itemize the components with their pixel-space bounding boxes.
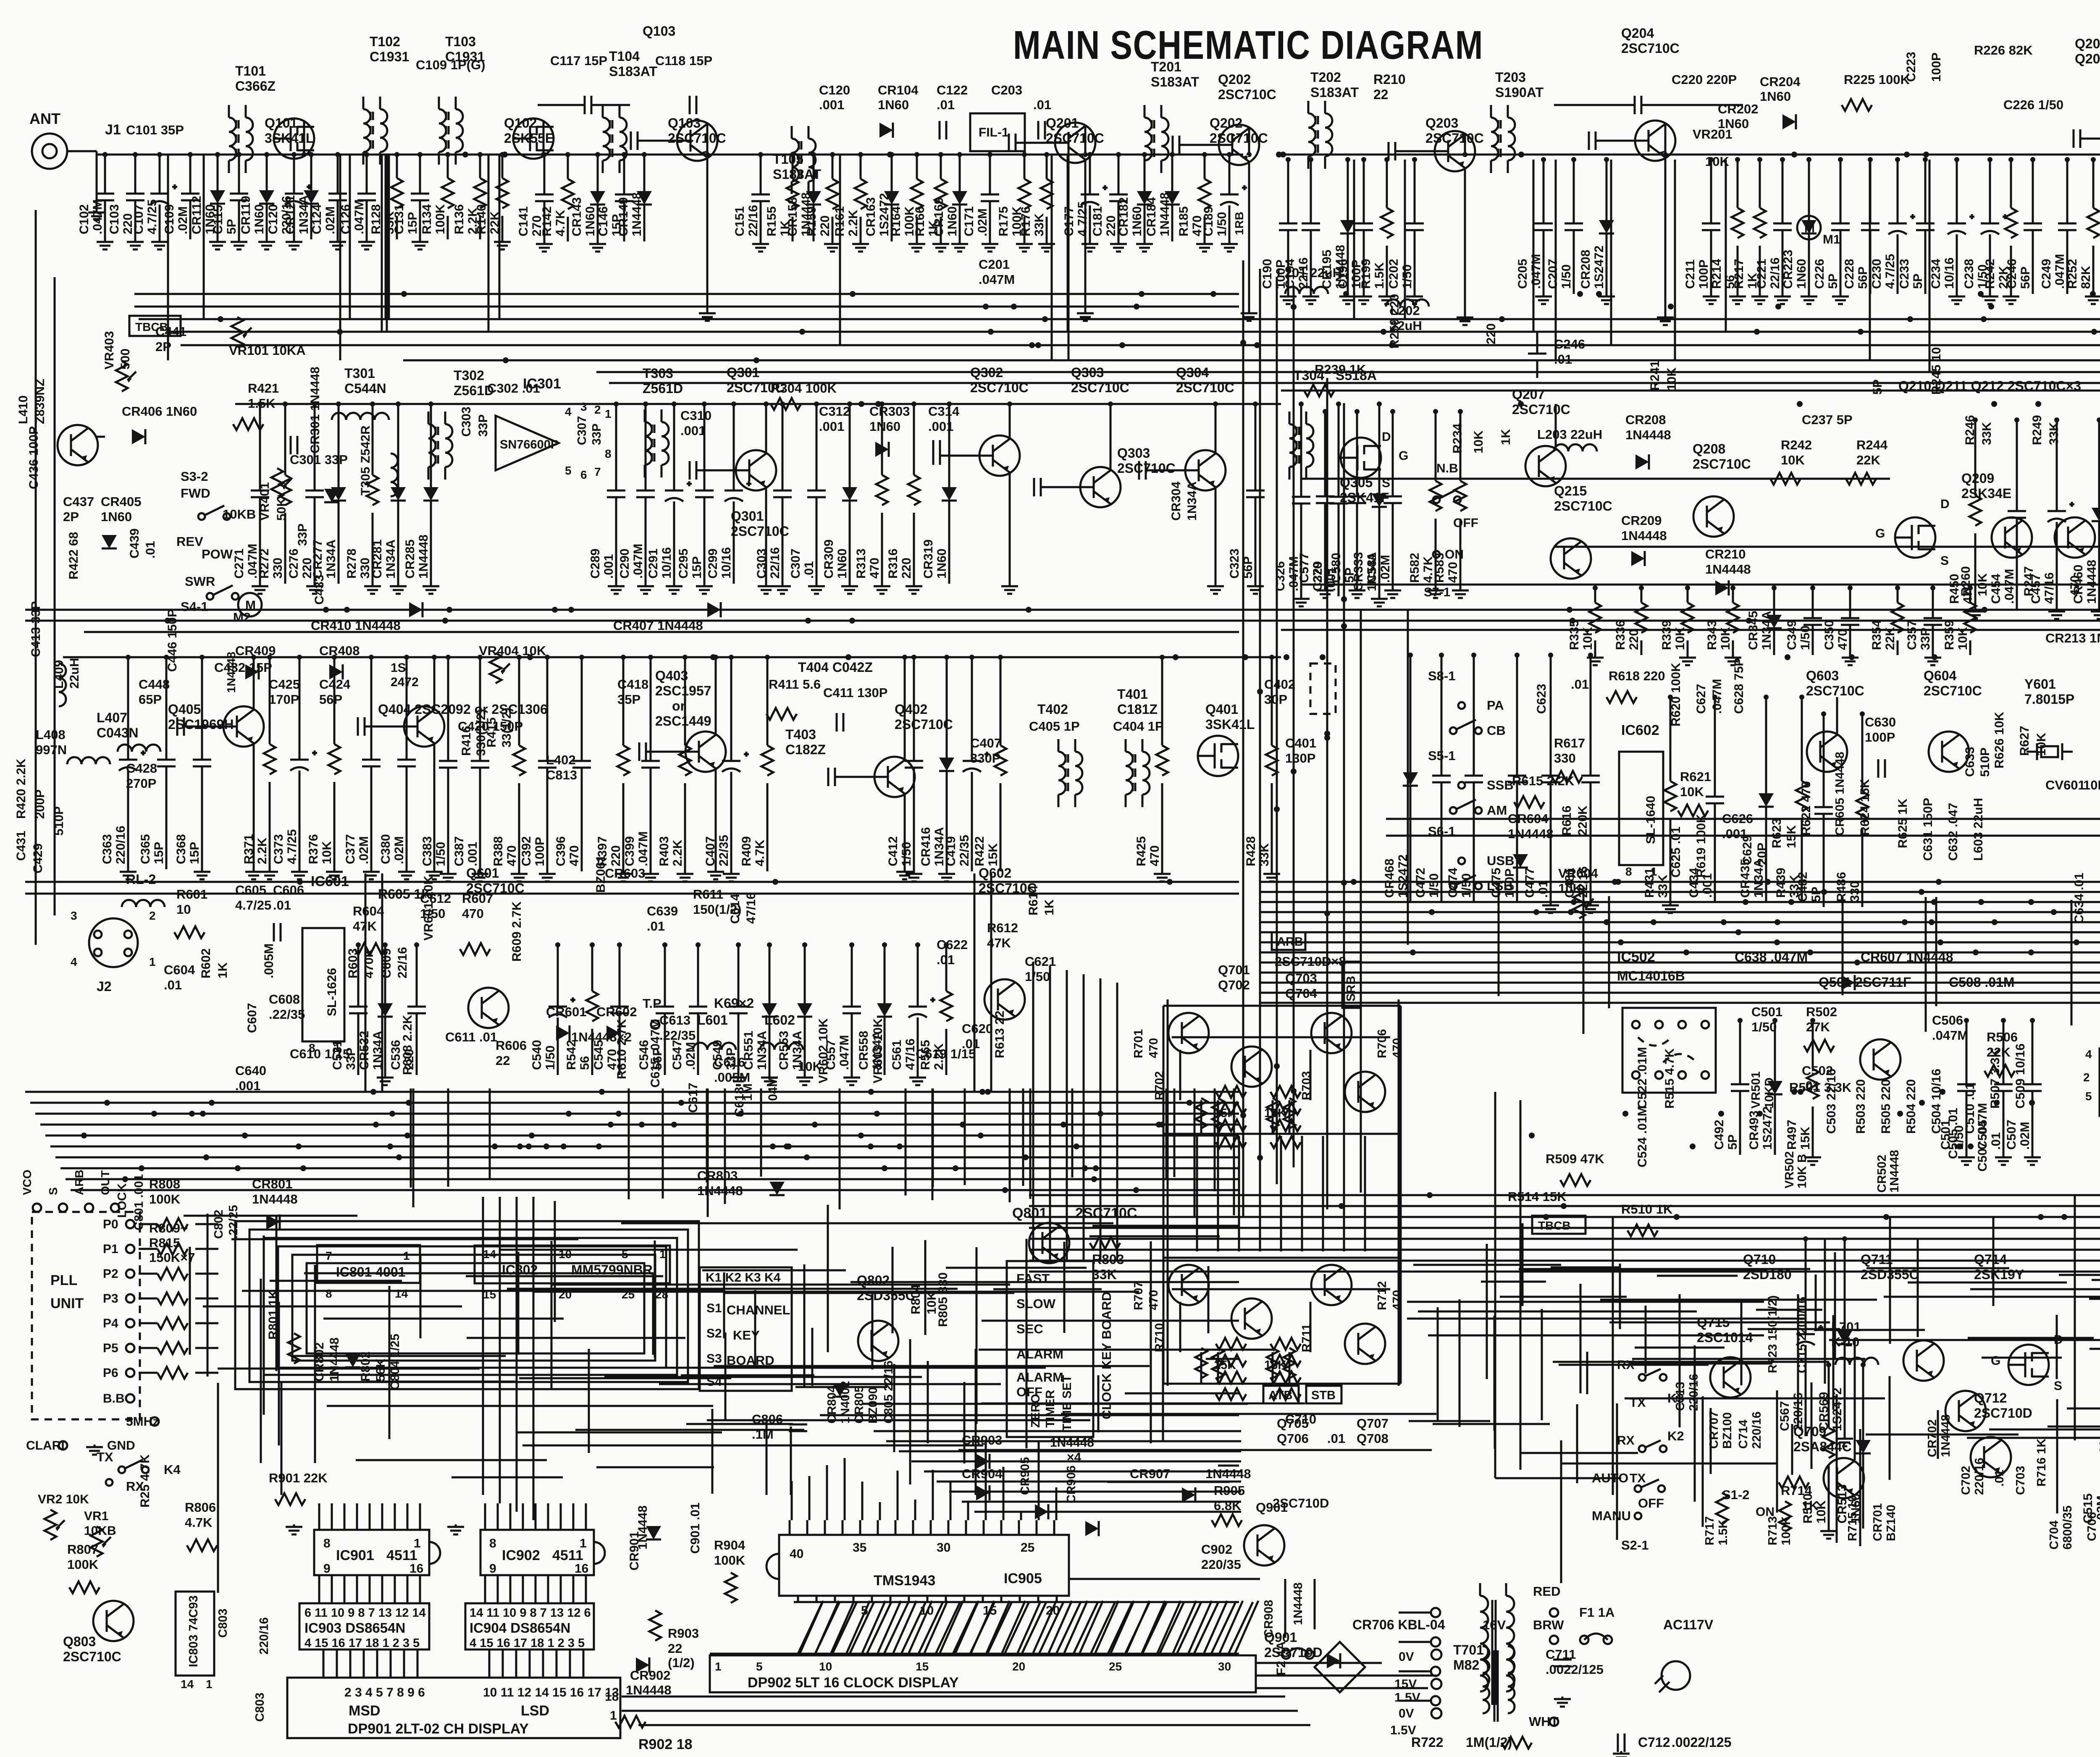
svg-text:C623: C623 <box>1535 684 1549 714</box>
svg-text:C632 .047: C632 .047 <box>1946 803 1960 861</box>
svg-text:CR208: CR208 <box>1625 412 1666 427</box>
svg-text:R199: R199 <box>1359 259 1373 289</box>
svg-text:2P: 2P <box>155 339 171 354</box>
svg-text:100P: 100P <box>1929 52 1943 82</box>
svg-text:T203: T203 <box>1495 70 1526 85</box>
svg-text:C433: C433 <box>312 574 326 605</box>
svg-text:IC601: IC601 <box>311 873 349 889</box>
svg-text:Q710: Q710 <box>1743 1252 1776 1267</box>
svg-text:14 11 10 9 8 7 13 12 6: 14 11 10 9 8 7 13 12 6 <box>470 1606 591 1620</box>
svg-text:.01: .01 <box>1327 1431 1345 1446</box>
svg-text:S183AT: S183AT <box>1151 74 1199 89</box>
svg-text:S8-1: S8-1 <box>1428 669 1455 683</box>
svg-text:2SK34E: 2SK34E <box>1961 486 2011 501</box>
svg-text:K2: K2 <box>1667 1429 1684 1443</box>
svg-text:CR903: CR903 <box>962 1433 1003 1448</box>
svg-text:C181: C181 <box>1091 206 1105 236</box>
svg-text:CR209: CR209 <box>1621 513 1662 528</box>
svg-text:CR208: CR208 <box>1579 250 1593 289</box>
svg-text:330: 330 <box>1848 881 1862 902</box>
svg-text:L402: L402 <box>546 753 576 767</box>
svg-text:C804 1/25: C804 1/25 <box>388 1334 402 1390</box>
svg-text:R217: R217 <box>1732 259 1746 289</box>
svg-text:15V: 15V <box>1394 1677 1417 1691</box>
svg-text:C604: C604 <box>164 962 195 977</box>
svg-text:R805 330: R805 330 <box>936 1272 950 1327</box>
svg-text:R620 100K: R620 100K <box>1669 663 1683 726</box>
svg-text:SRB: SRB <box>1344 976 1358 1002</box>
svg-text:1N4448: 1N4448 <box>1705 562 1751 577</box>
svg-text:7.8015P: 7.8015P <box>2024 692 2074 707</box>
svg-text:C392: C392 <box>520 836 533 866</box>
svg-text:VCO: VCO <box>21 1170 34 1195</box>
svg-text:1/50: 1/50 <box>434 842 448 866</box>
svg-text:Q204: Q204 <box>1621 26 1654 41</box>
svg-text:10: 10 <box>920 1604 934 1618</box>
svg-text:C117 15P: C117 15P <box>550 53 607 68</box>
svg-text:.005M: .005M <box>262 944 276 978</box>
svg-text:.0022/125: .0022/125 <box>1546 1662 1604 1677</box>
svg-text:Q301: Q301 <box>731 509 764 524</box>
svg-text:470: 470 <box>1961 583 1975 604</box>
svg-text:14: 14 <box>395 1287 408 1300</box>
svg-text:15P: 15P <box>406 212 420 234</box>
svg-text:Q706: Q706 <box>1277 1431 1309 1446</box>
svg-text:or: or <box>672 698 685 713</box>
svg-text:25: 25 <box>1021 1541 1034 1555</box>
svg-text:R226 82K: R226 82K <box>1974 43 2033 58</box>
svg-text:220/16: 220/16 <box>1750 1411 1764 1449</box>
svg-text:C396: C396 <box>554 836 568 866</box>
svg-text:UNIT: UNIT <box>50 1295 84 1311</box>
svg-text:R497: R497 <box>1785 1120 1799 1150</box>
svg-text:1S: 1S <box>391 661 406 675</box>
svg-text:CR551: CR551 <box>742 1031 756 1070</box>
svg-text:2SK41F: 2SK41F <box>1340 490 1389 505</box>
svg-text:.001: .001 <box>466 842 480 866</box>
svg-text:C246: C246 <box>2005 259 2019 289</box>
svg-text:1N34A: 1N34A <box>1760 611 1774 650</box>
svg-text:Q205: Q205 <box>2075 36 2100 51</box>
svg-text:CR904: CR904 <box>962 1466 1003 1481</box>
svg-text:VR502: VR502 <box>1783 1151 1796 1188</box>
svg-text:CR905: CR905 <box>1018 1457 1032 1495</box>
svg-text:C368: C368 <box>174 834 188 864</box>
svg-text:C211: C211 <box>1683 260 1697 289</box>
svg-text:D: D <box>2054 1333 2063 1347</box>
svg-text:C639: C639 <box>647 904 678 918</box>
svg-text:2SC710C: 2SC710C <box>1075 1205 1137 1221</box>
svg-text:220: 220 <box>402 1049 416 1070</box>
svg-text:1N4448: 1N4448 <box>626 1683 672 1697</box>
svg-text:P4: P4 <box>103 1316 118 1330</box>
svg-text:R617: R617 <box>1554 736 1585 750</box>
svg-text:1S2472: 1S2472 <box>1396 855 1410 898</box>
svg-text:R486: R486 <box>1835 872 1848 902</box>
svg-text:C621: C621 <box>1025 954 1056 969</box>
svg-text:220: 220 <box>1104 215 1118 236</box>
svg-text:8: 8 <box>1625 865 1632 878</box>
svg-text:T701: T701 <box>1453 1642 1484 1657</box>
svg-text:Q711: Q711 <box>1861 1252 1893 1267</box>
svg-text:4511: 4511 <box>386 1547 417 1563</box>
svg-text:CR204: CR204 <box>1760 74 1801 89</box>
svg-text:.02M: .02M <box>392 836 406 864</box>
svg-text:Y601: Y601 <box>2024 677 2056 692</box>
svg-text:R615 2.2K: R615 2.2K <box>1512 774 1575 788</box>
svg-text:C481: C481 <box>1563 868 1577 898</box>
svg-text:CR184: CR184 <box>1144 197 1158 236</box>
svg-text:VR401: VR401 <box>258 482 272 521</box>
svg-text:5MHz: 5MHz <box>126 1415 159 1429</box>
svg-text:CR163: CR163 <box>864 197 878 236</box>
svg-text:IC803 74C93: IC803 74C93 <box>187 1595 200 1667</box>
svg-text:1N60: 1N60 <box>869 419 900 434</box>
svg-text:15P: 15P <box>152 842 166 864</box>
svg-text:C454: C454 <box>1989 574 2003 604</box>
svg-text:R502: R502 <box>1806 1004 1837 1019</box>
svg-text:9: 9 <box>489 1562 496 1576</box>
svg-text:RX: RX <box>1617 1358 1635 1372</box>
svg-text:22/16: 22/16 <box>746 205 760 236</box>
svg-text:C714: C714 <box>1737 1420 1750 1449</box>
svg-text:10P: 10P <box>2083 778 2100 792</box>
svg-text:2SC710C: 2SC710C <box>668 131 726 146</box>
svg-text:P6: P6 <box>103 1366 118 1380</box>
svg-text:R244: R244 <box>1856 438 1888 452</box>
svg-text:R710: R710 <box>1153 1323 1166 1352</box>
svg-text:2SC710C: 2SC710C <box>1425 131 1484 146</box>
svg-text:CR304: CR304 <box>1169 481 1183 521</box>
svg-text:C613: C613 <box>659 1013 690 1028</box>
svg-text:1/50: 1/50 <box>543 1046 557 1070</box>
svg-text:R185: R185 <box>1177 206 1191 236</box>
svg-text:1/50: 1/50 <box>1025 969 1050 984</box>
svg-text:FAST: FAST <box>1016 1271 1050 1286</box>
svg-text:Q602: Q602 <box>979 865 1011 881</box>
svg-text:R627: R627 <box>2018 726 2032 756</box>
svg-text:10K B: 10K B <box>1795 1154 1809 1188</box>
svg-text:5: 5 <box>622 1248 628 1261</box>
svg-text:1/50: 1/50 <box>1215 212 1229 236</box>
svg-text:0V: 0V <box>1399 1707 1414 1720</box>
svg-text:C446 150P: C446 150P <box>165 609 179 672</box>
svg-text:C803: C803 <box>253 1693 267 1722</box>
svg-text:Q405: Q405 <box>168 702 201 717</box>
svg-text:16: 16 <box>575 1562 588 1576</box>
svg-text:R175: R175 <box>997 206 1011 236</box>
svg-text:R717: R717 <box>1703 1516 1717 1545</box>
svg-text:C299: C299 <box>706 548 720 579</box>
svg-text:5P: 5P <box>1911 273 1925 289</box>
svg-text:2SC1957: 2SC1957 <box>655 683 711 698</box>
svg-text:MC14016B: MC14016B <box>1617 968 1685 983</box>
svg-text:N.B: N.B <box>1436 462 1458 475</box>
svg-text:SWR: SWR <box>185 574 215 589</box>
svg-text:C401: C401 <box>1285 736 1316 750</box>
svg-text:MANU: MANU <box>1592 1508 1631 1523</box>
svg-text:C614: C614 <box>728 894 742 924</box>
svg-text:C902: C902 <box>1201 1542 1232 1557</box>
svg-text:R901 22K: R901 22K <box>269 1471 328 1485</box>
svg-text:CR104: CR104 <box>878 83 919 97</box>
svg-text:1/50: 1/50 <box>900 842 913 866</box>
svg-text:CR285: CR285 <box>403 540 417 579</box>
svg-text:56P: 56P <box>1241 556 1255 579</box>
svg-text:CR532: CR532 <box>357 1031 371 1070</box>
svg-text:150K×7: 150K×7 <box>149 1250 195 1265</box>
svg-text:2SC1449: 2SC1449 <box>655 713 711 729</box>
svg-text:CR409: CR409 <box>235 643 276 658</box>
svg-text:82K: 82K <box>2079 266 2093 289</box>
svg-text:1N4448: 1N4448 <box>1939 1414 1953 1457</box>
svg-text:Q404 2SC2092 or 2SC1306: Q404 2SC2092 or 2SC1306 <box>378 702 548 717</box>
svg-text:CR407 1N4448: CR407 1N4448 <box>613 618 703 633</box>
svg-text:IC602: IC602 <box>1621 722 1659 738</box>
svg-text:C545: C545 <box>592 1040 606 1070</box>
svg-text:R128: R128 <box>369 204 383 234</box>
svg-text:C631 150P: C631 150P <box>1921 798 1935 861</box>
svg-text:3: 3 <box>71 909 77 922</box>
svg-text:C290: C290 <box>618 548 632 579</box>
svg-text:1N34A: 1N34A <box>790 1031 804 1070</box>
svg-text:C622: C622 <box>937 937 968 952</box>
svg-text:56P: 56P <box>2019 267 2032 289</box>
svg-text:C249: C249 <box>2040 259 2053 289</box>
svg-text:R701: R701 <box>1132 1029 1145 1058</box>
svg-text:S1: S1 <box>706 1301 722 1315</box>
svg-text:.02M: .02M <box>2018 1122 2032 1150</box>
svg-text:1: 1 <box>605 407 612 420</box>
svg-text:100P: 100P <box>533 837 547 866</box>
svg-text:.0022/125: .0022/125 <box>1672 1735 1731 1750</box>
svg-text:S2-1: S2-1 <box>1621 1538 1648 1552</box>
svg-text:R506: R506 <box>1987 1030 2018 1044</box>
svg-text:10K: 10K <box>320 841 334 864</box>
svg-text:R159: R159 <box>805 206 819 236</box>
svg-text:2472: 2472 <box>391 675 419 689</box>
svg-text:2SC1014: 2SC1014 <box>1697 1330 1753 1345</box>
svg-text:C475: C475 <box>1489 868 1503 898</box>
svg-text:TX: TX <box>1630 1396 1646 1410</box>
svg-text:10K: 10K <box>1581 627 1595 650</box>
svg-text:0V: 0V <box>1399 1650 1414 1664</box>
svg-text:10K: 10K <box>1472 430 1486 454</box>
svg-text:4 15 16 17 18 1 2 3 5: 4 15 16 17 18 1 2 3 5 <box>304 1636 420 1650</box>
svg-text:G: G <box>1399 449 1408 463</box>
svg-text:C303: C303 <box>755 548 769 579</box>
svg-text:Q601: Q601 <box>466 865 499 881</box>
svg-text:5: 5 <box>565 464 572 477</box>
svg-text:ALARM: ALARM <box>1016 1370 1063 1385</box>
svg-text:CR210: CR210 <box>1705 547 1746 561</box>
svg-text:C581: C581 <box>1365 553 1379 583</box>
svg-text:CLARI: CLARI <box>26 1439 65 1453</box>
svg-text:5P: 5P <box>1726 1134 1740 1150</box>
svg-text:C413 33P: C413 33P <box>29 601 43 657</box>
svg-text:SSB: SSB <box>1487 778 1514 792</box>
svg-text:2SC710C: 2SC710C <box>1071 380 1129 395</box>
svg-text:TX: TX <box>1630 1471 1646 1485</box>
svg-text:C419: C419 <box>944 836 958 866</box>
svg-text:S6-1: S6-1 <box>1428 824 1455 839</box>
svg-text:BZ061: BZ061 <box>594 855 608 893</box>
svg-text:8: 8 <box>323 1537 331 1550</box>
svg-text:R316: R316 <box>886 548 900 579</box>
svg-text:Q101: Q101 <box>265 115 297 131</box>
svg-text:R582: R582 <box>1408 553 1422 583</box>
svg-text:R313: R313 <box>854 548 868 579</box>
svg-text:1M(1/2): 1M(1/2) <box>1466 1735 1512 1750</box>
svg-text:SEC: SEC <box>1016 1322 1043 1336</box>
svg-text:C126: C126 <box>339 204 353 234</box>
svg-text:C806: C806 <box>752 1412 783 1427</box>
svg-text:POW: POW <box>202 547 233 561</box>
svg-text:R625 1K: R625 1K <box>1896 798 1910 848</box>
svg-text:R801 1K: R801 1K <box>266 1290 280 1340</box>
svg-text:C411 130P: C411 130P <box>823 685 887 700</box>
svg-text:C171: C171 <box>962 206 976 236</box>
svg-text:6800/35: 6800/35 <box>2061 1505 2074 1550</box>
svg-text:Q712: Q712 <box>1974 1390 2007 1406</box>
svg-text:25: 25 <box>622 1288 635 1301</box>
svg-text:1N34A: 1N34A <box>870 1031 884 1070</box>
svg-text:TBCB: TBCB <box>1538 1219 1571 1232</box>
svg-text:MM5799NBR: MM5799NBR <box>571 1262 653 1277</box>
svg-text:R723 150(1/2): R723 150(1/2) <box>1766 1295 1780 1373</box>
svg-text:15P: 15P <box>690 556 704 579</box>
svg-text:S4: S4 <box>706 1375 722 1389</box>
svg-text:2SC710C: 2SC710C <box>1693 456 1751 472</box>
svg-text:VR2 10K: VR2 10K <box>38 1492 89 1506</box>
svg-text:.047M: .047M <box>91 199 105 234</box>
svg-text:R804: R804 <box>909 1284 923 1314</box>
svg-text:STB: STB <box>1311 1389 1336 1402</box>
svg-text:P0: P0 <box>103 1217 118 1231</box>
svg-text:1N60: 1N60 <box>101 509 132 524</box>
svg-text:C434: C434 <box>1687 868 1701 898</box>
svg-text:470: 470 <box>1391 1038 1404 1058</box>
svg-text:1S2472: 1S2472 <box>1830 1388 1844 1431</box>
svg-text:2SK19Y: 2SK19Y <box>1974 1267 2024 1282</box>
svg-text:2SC710D×8: 2SC710D×8 <box>1275 954 1346 969</box>
svg-text:C577: C577 <box>1297 553 1311 583</box>
svg-text:.001: .001 <box>928 419 953 434</box>
svg-text:C289: C289 <box>588 548 602 579</box>
svg-text:C607: C607 <box>245 1003 259 1033</box>
svg-text:Q604: Q604 <box>1924 668 1956 683</box>
svg-text:Q305: Q305 <box>1340 475 1373 490</box>
svg-text:1K: 1K <box>1499 429 1513 445</box>
svg-text:K4: K4 <box>164 1462 181 1477</box>
svg-text:R703: R703 <box>1300 1071 1313 1100</box>
svg-text:Z839NZ: Z839NZ <box>33 379 47 424</box>
svg-text:VR1: VR1 <box>84 1509 108 1523</box>
svg-text:R249: R249 <box>2030 415 2044 445</box>
svg-text:.001: .001 <box>235 1078 260 1093</box>
svg-text:R509 47K: R509 47K <box>1546 1151 1604 1166</box>
svg-text:1N4448: 1N4448 <box>252 1192 298 1206</box>
svg-text:2SD355C: 2SD355C <box>857 1288 915 1303</box>
svg-text:C109 1P(G): C109 1P(G) <box>416 58 485 72</box>
svg-text:×4: ×4 <box>1067 1450 1081 1464</box>
svg-text:Q202: Q202 <box>1218 72 1251 87</box>
svg-text:130P: 130P <box>1285 751 1315 766</box>
svg-text:470K: 470K <box>362 948 376 978</box>
svg-text:2P: 2P <box>63 509 79 524</box>
svg-text:R515 4.7K: R515 4.7K <box>1663 1048 1677 1109</box>
svg-text:470: 470 <box>1147 1290 1160 1310</box>
svg-text:Q801: Q801 <box>1012 1205 1047 1221</box>
svg-text:47K: 47K <box>353 919 377 934</box>
svg-text:CHANNEL: CHANNEL <box>727 1303 790 1317</box>
svg-text:1K: 1K <box>1042 899 1056 915</box>
svg-text:C805 22/16: C805 22/16 <box>882 1361 895 1424</box>
svg-text:ATB: ATB <box>1268 1389 1292 1402</box>
svg-text:170P: 170P <box>269 692 299 707</box>
svg-text:1N34A: 1N34A <box>384 540 398 579</box>
svg-text:LSD: LSD <box>521 1703 549 1719</box>
svg-text:BOARD: BOARD <box>727 1353 774 1368</box>
svg-text:D: D <box>1382 430 1391 444</box>
svg-text:22K: 22K <box>1856 453 1880 467</box>
svg-text:C202: C202 <box>1387 259 1401 289</box>
svg-text:22/16: 22/16 <box>768 547 782 579</box>
svg-text:C407: C407 <box>970 736 1001 750</box>
svg-text:M82: M82 <box>1453 1657 1479 1673</box>
svg-text:33K: 33K <box>1092 1267 1117 1282</box>
svg-text:2 3 4 5 7 8 9 6: 2 3 4 5 7 8 9 6 <box>344 1686 425 1699</box>
svg-text:10K: 10K <box>1665 367 1679 391</box>
svg-text:15: 15 <box>483 1288 496 1301</box>
svg-text:R904: R904 <box>714 1538 745 1552</box>
svg-text:J2: J2 <box>97 979 112 994</box>
svg-text:27K: 27K <box>1806 1020 1830 1034</box>
svg-text:20: 20 <box>1046 1604 1060 1618</box>
svg-text:J1: J1 <box>105 122 121 138</box>
svg-text:Q302: Q302 <box>970 365 1003 380</box>
svg-text:C226 1/50: C226 1/50 <box>2003 97 2063 112</box>
svg-text:C405 1P: C405 1P <box>1029 719 1080 734</box>
svg-text:10K: 10K <box>1814 1500 1828 1524</box>
svg-text:22K: 22K <box>488 211 502 234</box>
svg-text:CR907: CR907 <box>1130 1466 1171 1481</box>
svg-text:4.7/25: 4.7/25 <box>235 898 271 913</box>
svg-text:2SC710C: 2SC710C <box>1210 131 1268 146</box>
svg-text:22/35: 22/35 <box>958 835 971 866</box>
svg-text:.047M: .047M <box>1932 1028 1968 1043</box>
svg-text:2SC710D: 2SC710D <box>1264 1645 1323 1660</box>
svg-text:4.7/25: 4.7/25 <box>285 829 299 864</box>
svg-text:C536: C536 <box>389 1040 403 1070</box>
svg-text:14: 14 <box>483 1248 496 1261</box>
svg-text:4: 4 <box>2085 1048 2092 1061</box>
svg-text:L602: L602 <box>764 1012 795 1028</box>
svg-text:CR607 1N4448: CR607 1N4448 <box>1861 949 1953 965</box>
svg-text:C207: C207 <box>1546 259 1560 289</box>
svg-text:1/50: 1/50 <box>1751 1020 1777 1034</box>
svg-text:30: 30 <box>1218 1660 1231 1673</box>
svg-text:R905: R905 <box>1214 1483 1245 1498</box>
svg-text:C640: C640 <box>235 1063 266 1078</box>
svg-text:100K: 100K <box>67 1557 99 1572</box>
svg-text:10KB: 10KB <box>223 507 256 522</box>
svg-text:510P: 510P <box>1978 747 1992 777</box>
svg-text:1N60: 1N60 <box>1130 206 1144 236</box>
svg-text:C301 33P: C301 33P <box>290 452 348 467</box>
svg-text:C630: C630 <box>1865 715 1896 729</box>
svg-text:2SC710C: 2SC710C <box>1554 498 1612 514</box>
